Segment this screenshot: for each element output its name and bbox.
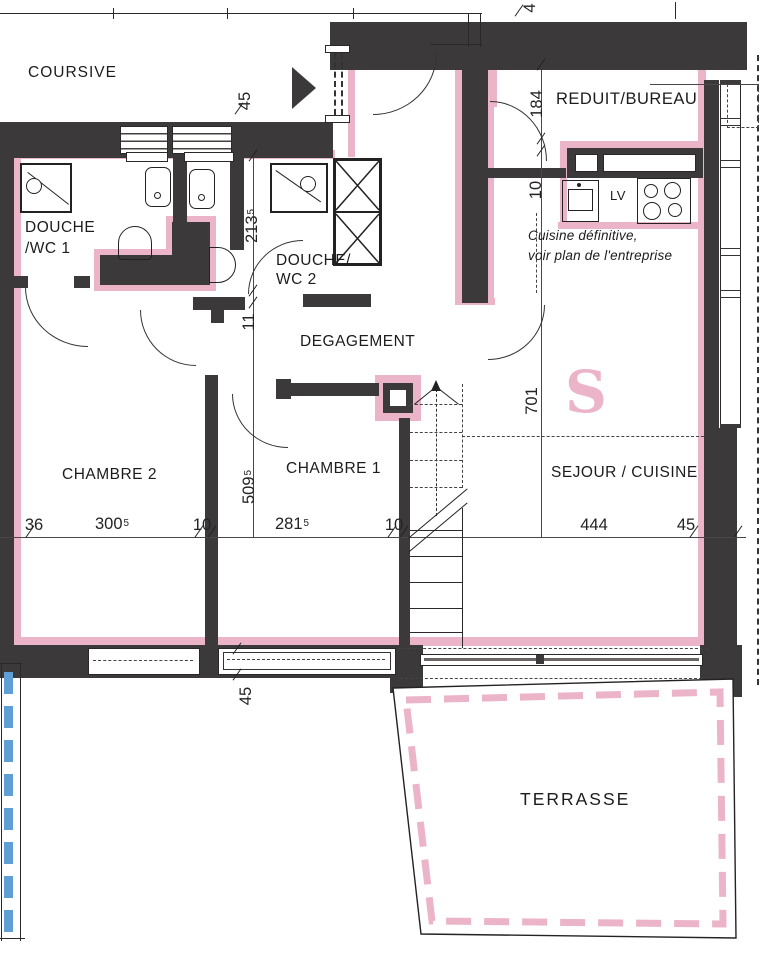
room-label-coursive: COURSIVE — [28, 64, 117, 82]
coursive-railing-end — [480, 13, 481, 47]
door-arc-sejour — [488, 305, 545, 360]
dim-row-10b: 10 — [378, 515, 410, 535]
shower-head-icon — [26, 178, 42, 194]
room-label-sejour-cuisine: SEJOUR / CUISINE — [551, 464, 698, 482]
wall-hall-reduit — [462, 45, 488, 303]
stair-tread — [410, 530, 462, 531]
toilet-wc2 — [209, 247, 236, 283]
railing-tick — [227, 8, 228, 19]
window-chambre1 — [218, 648, 396, 675]
room-label-degagement: DEGAGEMENT — [300, 333, 415, 351]
entry-door-opening-dashed — [341, 53, 343, 115]
kitchen-note-line1: Cuisine définitive, — [528, 226, 672, 246]
washbasin-drain — [198, 194, 205, 201]
stair-tread — [410, 632, 462, 633]
stair-tread — [410, 556, 462, 557]
shower-head-icon — [300, 176, 316, 192]
dim-entry-45: 45 — [232, 88, 258, 114]
stair-tread — [410, 608, 462, 609]
room-label-douche-wc2: DOUCHE/ — [276, 252, 351, 270]
window-center-line — [93, 660, 193, 661]
dim-reduit-184: 184 — [525, 86, 549, 122]
balcony-edge-dashed — [757, 55, 759, 685]
entry-door-opening-dashed — [334, 53, 336, 115]
window-coursive-2 — [172, 126, 232, 154]
entry-threshold-top — [325, 45, 350, 53]
door-arc-wc1 — [25, 287, 88, 347]
door-arc-chambre2 — [140, 310, 196, 366]
wall-left — [0, 158, 14, 678]
dim-bottom-45: 45 — [233, 684, 259, 708]
room-label-chambre1: CHAMBRE 1 — [286, 460, 381, 478]
stove-burner — [644, 184, 658, 198]
sliding-door-stile — [536, 655, 544, 664]
railing-cap-bottom — [0, 938, 25, 939]
wall-bath-divider-1 — [173, 152, 187, 222]
coursive-railing-return — [430, 44, 482, 45]
dim-sejour-701: 701 — [519, 381, 545, 421]
railing-cap-top — [0, 663, 22, 664]
washbasin-drain — [154, 192, 161, 199]
dim-bath-213-5: 2135 — [238, 204, 266, 248]
stair-walk-line — [436, 384, 437, 516]
room-label-douche-wc1-2: /WC 1 — [25, 240, 71, 258]
entry-threshold-bottom — [325, 115, 350, 123]
coursive-railing — [0, 13, 482, 14]
stair-edge — [462, 508, 463, 648]
window-inner-frame — [223, 652, 391, 670]
kitchen-note-line2: voir plan de l'entreprise — [528, 246, 672, 266]
wall-wc2-stub-right — [303, 294, 371, 307]
room-label-terrasse: TERRASSE — [520, 789, 630, 809]
dim-row-444: 444 — [570, 515, 618, 535]
room-label-douche-wc1: DOUCHE — [25, 219, 95, 237]
room-label-chambre2: CHAMBRE 2 — [62, 466, 157, 484]
railing-line-outer — [1, 663, 2, 941]
window-coursive-1 — [120, 126, 168, 154]
railing-line-inner — [20, 663, 21, 941]
stair-edge-dashed — [462, 384, 463, 488]
sliding-door-glass — [424, 658, 699, 661]
stair-break-line — [408, 489, 468, 539]
terrace-threshold-dashed — [400, 678, 702, 679]
window-facade-mullion — [720, 290, 741, 298]
door-arc-entry — [373, 53, 437, 115]
coursive-railing-end — [468, 13, 469, 47]
pink-boundary-kitchen-top — [560, 141, 706, 148]
door-arc-chambre1 — [232, 394, 288, 448]
window-center-line — [227, 659, 385, 660]
dim-rooms-509-5: 5095 — [235, 465, 263, 509]
floor-plan: COURSIVE DOUCHE /WC 1 DOUCHE/ WC 2 DEGAG… — [0, 0, 783, 957]
window-facade-mullion — [720, 248, 741, 256]
balcony-dashed-box — [727, 84, 759, 128]
wall-facade-right-lower — [704, 428, 737, 662]
dim-row-300-5: 3005 — [84, 513, 140, 535]
wall-wc2-stub-foot — [211, 310, 224, 323]
dim-row-281-5: 2815 — [264, 513, 320, 535]
stair-tread — [410, 582, 462, 583]
technical-duct — [333, 158, 382, 266]
kitchen-faucet — [577, 183, 581, 187]
window-chambre2 — [88, 648, 200, 675]
railing-tick — [675, 2, 676, 19]
level-cut-dashed — [462, 436, 704, 437]
washbasin-2 — [189, 169, 215, 209]
window-facade-mullion — [720, 160, 741, 168]
dim-row-45: 45 — [666, 515, 706, 535]
toilet-wc1 — [118, 226, 152, 260]
wall-wc-L-vertical — [172, 222, 210, 262]
terrace-threshold-dashed — [398, 648, 708, 649]
s-mark: S — [565, 358, 607, 426]
railing-tick — [353, 8, 354, 19]
kitchen-sink-basin — [568, 189, 593, 211]
window-sill-1 — [126, 152, 168, 162]
wall-bedroom-divider — [205, 375, 218, 648]
stove-burner — [664, 182, 681, 199]
entry-arrow-icon — [292, 67, 316, 109]
glass-railing-blue — [4, 672, 13, 934]
dim-row-36: 36 — [14, 515, 54, 535]
railing-tick — [113, 8, 114, 19]
kitchen-note: Cuisine définitive, voir plan de l'entre… — [528, 226, 672, 267]
dim-reduit-10: 10 — [524, 176, 548, 204]
dim-wall-11: 11 — [237, 308, 261, 336]
room-label-reduit-bureau: REDUIT/BUREAU — [556, 90, 697, 109]
dim-line-horizontal — [0, 537, 746, 538]
wall-chambre1-header — [281, 383, 379, 396]
dim-top-4: 4 — [522, 0, 538, 20]
stove-burner — [668, 203, 682, 217]
window-sill-2 — [184, 152, 234, 162]
pillar-center — [390, 390, 406, 406]
pink-boundary-hall-wall-left — [455, 50, 462, 305]
washbasin-1 — [145, 167, 171, 207]
pink-boundary-left — [13, 150, 21, 644]
kitchen-niche-box — [603, 154, 696, 172]
stair-arrow-chevron — [435, 386, 458, 405]
room-label-douche-wc2-2: WC 2 — [276, 271, 317, 289]
kitchen-niche-box — [575, 154, 598, 172]
stove-burner — [643, 202, 661, 220]
wall-facade-right-upper — [704, 80, 719, 428]
dim-row-10a: 10 — [186, 515, 218, 535]
dishwasher-label: LV — [610, 189, 626, 204]
window-facade-cap-bottom — [720, 424, 741, 428]
stair-break-line — [408, 503, 468, 553]
